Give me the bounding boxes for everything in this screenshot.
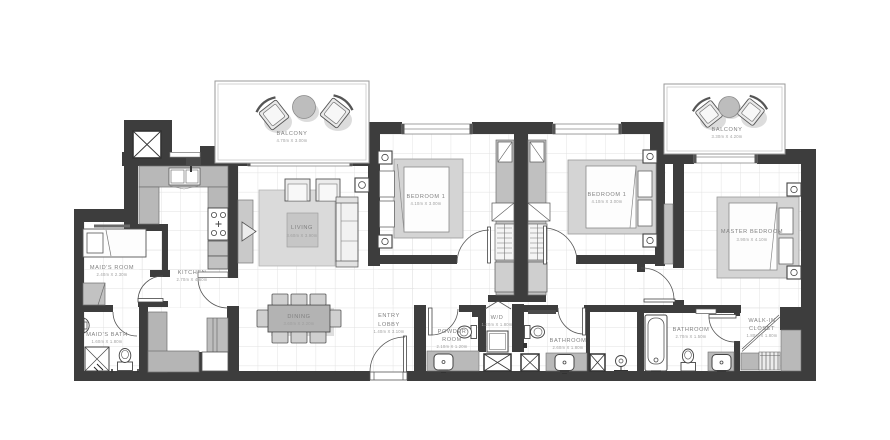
svg-text:1.60m X 1.80m: 1.60m X 1.80m [92,339,123,344]
svg-text:MASTER BEDROOM: MASTER BEDROOM [721,229,783,235]
svg-text:4.70m X 3.00m: 4.70m X 3.00m [277,138,308,143]
svg-text:BATHROOM: BATHROOM [550,338,587,344]
svg-text:LIVING: LIVING [291,225,313,231]
svg-text:MAID'S ROOM: MAID'S ROOM [90,265,134,271]
svg-text:3.90m X 4.10m: 3.90m X 4.10m [737,237,768,242]
svg-text:BATHROOM: BATHROOM [673,327,710,333]
svg-text:1.40m X 3.10m: 1.40m X 3.10m [374,329,405,334]
svg-text:MAID'S BATH: MAID'S BATH [86,332,127,338]
svg-text:2.70m X 1.50m: 2.70m X 1.50m [676,334,707,339]
svg-text:BALCONY: BALCONY [712,127,743,133]
svg-text:1.80m X 1.80m: 1.80m X 1.80m [747,333,778,338]
svg-text:BEDROOM 1: BEDROOM 1 [588,192,627,198]
svg-text:POWDER: POWDER [438,329,467,335]
svg-text:3.60m X 3.90m: 3.60m X 3.90m [287,233,318,238]
svg-text:2.60m X 1.80m: 2.60m X 1.80m [553,345,584,350]
svg-text:2.10m X 1.20m: 2.10m X 1.20m [437,344,468,349]
svg-text:4.10m X 3.00m: 4.10m X 3.00m [592,199,623,204]
svg-text:WALK-IN: WALK-IN [748,318,775,324]
svg-text:W/D: W/D [491,315,504,321]
svg-text:ROOM: ROOM [442,337,462,343]
svg-text:4.10m X 3.00m: 4.10m X 3.00m [411,201,442,206]
svg-text:2.40m X 2.30m: 2.40m X 2.30m [97,272,128,277]
svg-text:LOBBY: LOBBY [378,322,400,328]
svg-text:1.20m X 1.80m: 1.20m X 1.80m [482,322,513,327]
svg-text:3.30m X 4.20m: 3.30m X 4.20m [712,134,743,139]
svg-text:BEDROOM 1: BEDROOM 1 [407,194,446,200]
svg-text:ENTRY: ENTRY [378,313,400,319]
svg-text:3.60m X 2.20m: 3.60m X 2.20m [284,321,315,326]
svg-text:CLOSET: CLOSET [749,326,775,332]
svg-text:DINING: DINING [287,314,310,320]
svg-text:BALCONY: BALCONY [277,131,308,137]
